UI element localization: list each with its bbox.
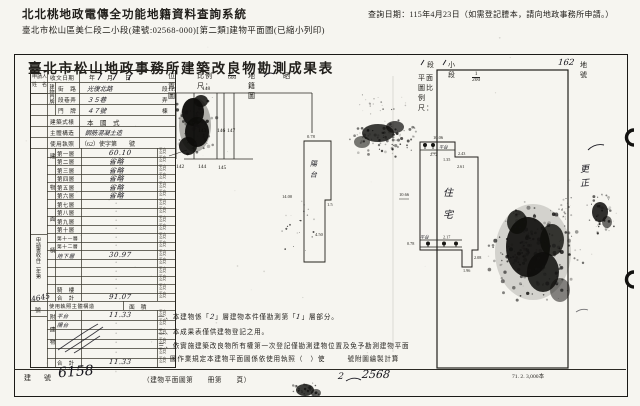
main-plan-room-label: 住 (443, 187, 455, 199)
dimension-label: 1.35 (443, 157, 450, 162)
bottom-platform-label: 平台 (420, 235, 429, 241)
margin-squiggle (588, 145, 604, 150)
dimension-label: 2.08 (474, 255, 481, 260)
dimension-label: 2.61 (457, 164, 464, 169)
lot-number: 142 (176, 164, 185, 170)
dimension-label: 0.78 (407, 241, 414, 246)
diagonal-handwriting (58, 324, 103, 353)
dimension-label: 1.5 (327, 202, 333, 207)
lot-number: 148 (202, 86, 211, 92)
handwritten-tick-marks (98, 60, 446, 381)
margin-squiggle (576, 309, 588, 312)
dimension-label: 2.43 (458, 151, 465, 156)
dimension-label: 1.96 (463, 268, 470, 273)
lot-number: 147 (227, 128, 236, 134)
scan-edge-artifacts (627, 130, 634, 287)
main-plan-room-label: 宅 (443, 209, 455, 221)
scanned-survey-document-page: 北北桃地政電傳全功能地籍資料查詢系統 查詢日期：115年4月23日（如需登記謄本… (0, 0, 640, 406)
top-platform-label: 平台 (439, 145, 448, 151)
dimension-label: 10.06 (433, 135, 444, 140)
correction-handwriting: 正 (580, 179, 591, 190)
ink-stains (296, 121, 612, 397)
lot-number: 147 (168, 87, 177, 93)
dimension-label: 2.17 (443, 235, 450, 240)
narrow-plan: 0.78 14.00 1.5 4.50 陽 台 (282, 134, 333, 262)
main-plan: 平台 平台 10.06 2.72 1.35 2.43 2.61 10.66 2.… (399, 135, 481, 273)
narrow-plan-room-label: 台 (310, 171, 318, 179)
dimension-label: 0.78 (307, 134, 316, 139)
dimension-label: 10.66 (399, 192, 410, 197)
lot-number: 145 (218, 165, 227, 171)
dimension-label: 4.50 (315, 232, 324, 237)
margin-annotation: 更 正 (576, 145, 604, 312)
dimension-label: 14.00 (282, 194, 293, 199)
correction-handwriting: 更 (580, 164, 592, 176)
narrow-plan-room-label: 陽 (310, 160, 318, 168)
lot-number: 146 (217, 128, 226, 134)
lot-number: 144 (198, 164, 207, 170)
survey-sketch-overlay: 147 148 143 146 147 142 144 145 0.78 14.… (0, 0, 640, 406)
